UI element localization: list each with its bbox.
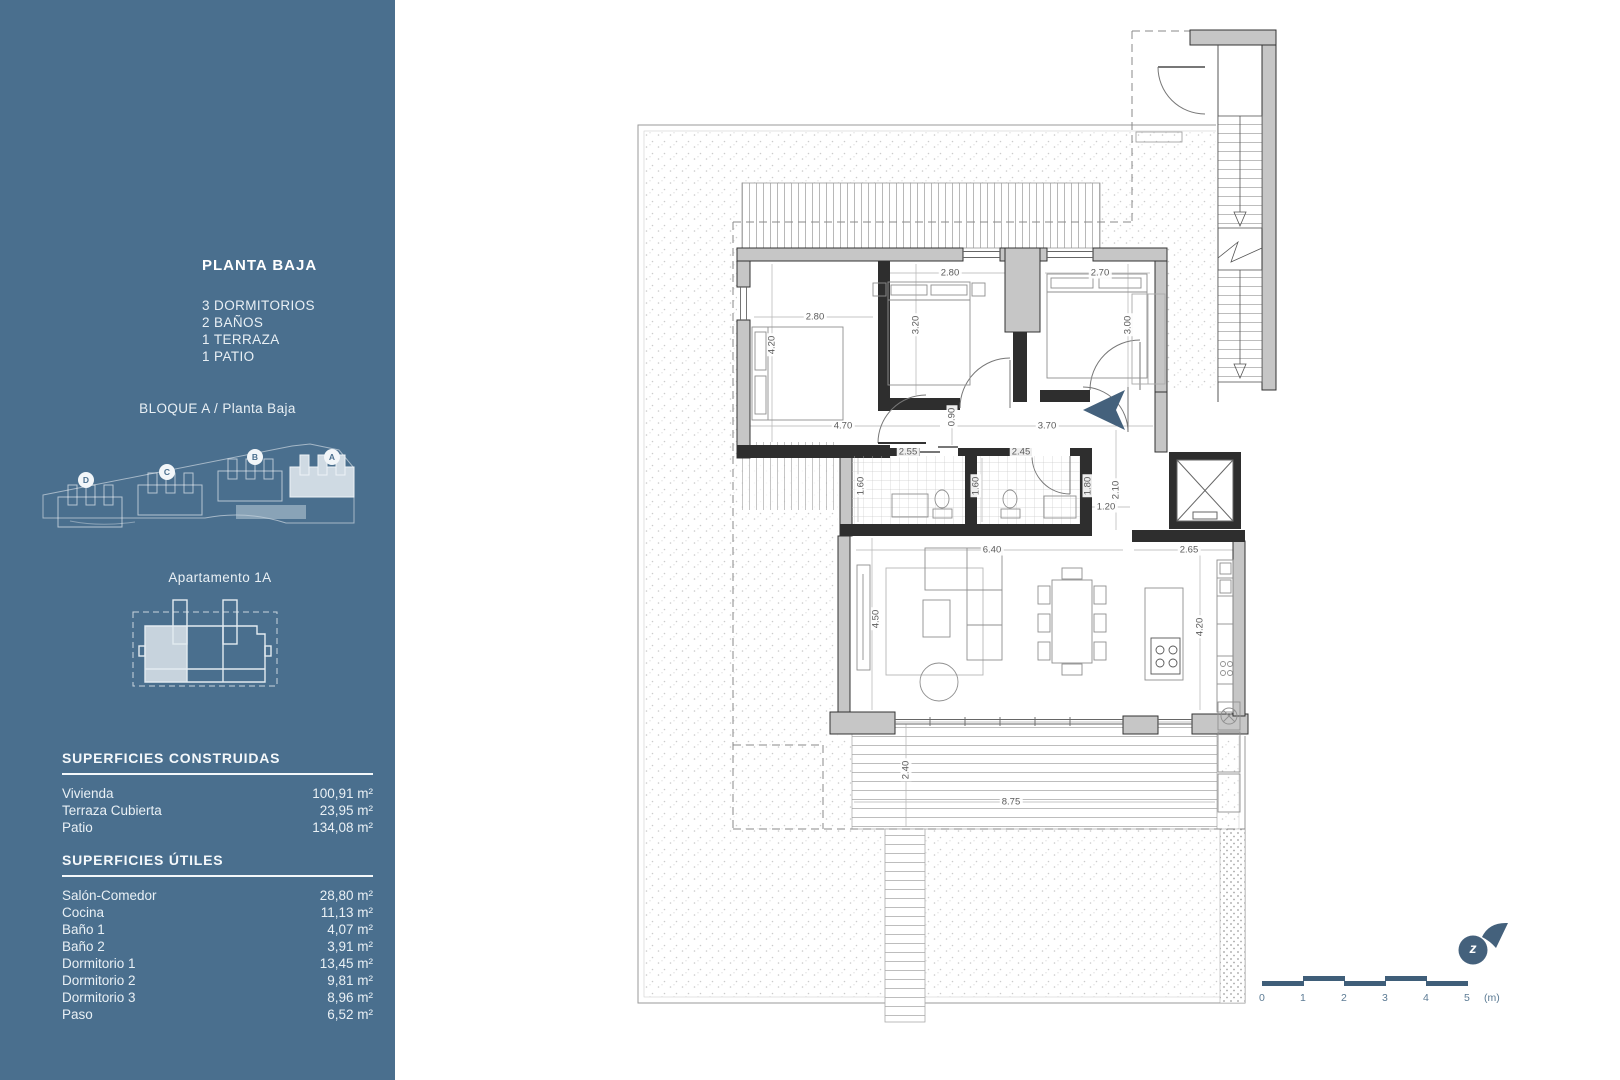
row-label: Cocina (62, 904, 104, 921)
dim-hall-b: 2.10 (1111, 479, 1122, 502)
dim-bath1-width: 2.55 (897, 447, 920, 458)
dim-bed1-width: 2.80 (804, 312, 827, 323)
dim-living-depth: 4.50 (871, 608, 882, 631)
feature-bedrooms: 3 DORMITORIOS (202, 297, 372, 314)
table-row: Baño 23,91 m² (62, 938, 373, 955)
scale-tick-1: 1 (1300, 992, 1306, 1004)
row-value: 6,52 m² (327, 1006, 373, 1023)
surfaces-useful-heading: SUPERFICIES ÚTILES (62, 852, 373, 877)
scale-tick-5: 5 (1464, 992, 1470, 1004)
table-row: Dormitorio 113,45 m² (62, 955, 373, 972)
surfaces-built-heading: SUPERFICIES CONSTRUIDAS (62, 750, 373, 775)
row-value: 4,07 m² (327, 921, 373, 938)
scale-tick-3: 3 (1382, 992, 1388, 1004)
row-label: Baño 1 (62, 921, 105, 938)
row-label: Dormitorio 3 (62, 989, 136, 1006)
sidebar: PLANTA BAJA 3 DORMITORIOS 2 BAÑOS 1 TERR… (0, 0, 395, 1080)
compass-logo-icon (1450, 920, 1516, 976)
row-label: Paso (62, 1006, 93, 1023)
pergola-roof (742, 183, 1100, 248)
dim-bed2-depth: 3.20 (911, 314, 922, 337)
block-badge-b: B (247, 449, 263, 465)
table-row: Patio134,08 m² (62, 819, 373, 836)
block-badge-d: D (78, 472, 94, 488)
dim-bath2-width: 2.45 (1010, 447, 1033, 458)
dim-bath2-depth: 1.60 (971, 475, 982, 498)
row-value: 8,96 m² (327, 989, 373, 1006)
logo-letter: z (1464, 940, 1482, 956)
dim-bed1-depth: 4.20 (767, 334, 778, 357)
brand-logo: z (1450, 920, 1516, 976)
row-value: 28,80 m² (320, 887, 373, 904)
dim-corridor-b: 0.90 (947, 406, 958, 429)
row-label: Salón-Comedor (62, 887, 157, 904)
feature-bathrooms: 2 BAÑOS (202, 314, 372, 331)
floor-plan: 2.80 4.20 2.80 3.20 2.70 3.00 4.70 0.90 … (620, 12, 1280, 1072)
table-row: Dormitorio 38,96 m² (62, 989, 373, 1006)
dim-bath1-depth: 1.60 (856, 475, 867, 498)
scale-tick-0: 0 (1259, 992, 1265, 1004)
dim-corridor-a: 4.70 (832, 421, 855, 432)
page-title: PLANTA BAJA (202, 257, 372, 274)
row-value: 13,45 m² (320, 955, 373, 972)
table-row: Baño 14,07 m² (62, 921, 373, 938)
row-value: 11,13 m² (321, 904, 373, 921)
highlighted-block-a (290, 455, 354, 497)
dim-deck-width: 8.75 (1000, 797, 1023, 808)
scale-tick-2: 2 (1341, 992, 1347, 1004)
table-row: Salón-Comedor28,80 m² (62, 887, 373, 904)
row-value: 134,08 m² (312, 819, 373, 836)
site-plan: D C B A (40, 423, 360, 533)
scale-unit: (m) (1484, 992, 1500, 1004)
apartment-diagram (125, 594, 285, 696)
feature-patio: 1 PATIO (202, 348, 372, 365)
row-value: 9,81 m² (327, 972, 373, 989)
table-row: Cocina11,13 m² (62, 904, 373, 921)
block-label: BLOQUE A / Planta Baja (60, 401, 375, 416)
scale-tick-4: 4 (1423, 992, 1429, 1004)
dim-corridor-c: 3.70 (1036, 421, 1059, 432)
feature-list: 3 DORMITORIOS 2 BAÑOS 1 TERRAZA 1 PATIO (202, 297, 372, 365)
feature-terrace: 1 TERRAZA (202, 331, 372, 348)
dim-living-width: 6.40 (981, 545, 1004, 556)
row-label: Patio (62, 819, 93, 836)
scale-bar: 0 1 2 3 4 5 (m) (1262, 976, 1512, 1008)
dim-deck-depth: 2.40 (901, 759, 912, 782)
surfaces-useful-section: SUPERFICIES ÚTILES Salón-Comedor28,80 m²… (62, 852, 373, 1023)
plan-header: PLANTA BAJA 3 DORMITORIOS 2 BAÑOS 1 TERR… (202, 257, 372, 365)
apartment-label: Apartamento 1A (65, 570, 375, 585)
table-row: Vivienda100,91 m² (62, 785, 373, 802)
dim-bed3-depth: 3.00 (1123, 314, 1134, 337)
row-label: Terraza Cubierta (62, 802, 162, 819)
row-label: Vivienda (62, 785, 114, 802)
table-row: Paso6,52 m² (62, 1006, 373, 1023)
row-label: Dormitorio 2 (62, 972, 136, 989)
elevator (1177, 460, 1233, 521)
surfaces-built-section: SUPERFICIES CONSTRUIDAS Vivienda100,91 m… (62, 750, 373, 836)
table-row: Terraza Cubierta23,95 m² (62, 802, 373, 819)
dim-hall-a: 1.80 (1083, 475, 1094, 498)
dim-kitchen-depth: 4.20 (1195, 616, 1206, 639)
row-value: 3,91 m² (327, 938, 373, 955)
table-row: Dormitorio 29,81 m² (62, 972, 373, 989)
floor-plan-drawing (620, 12, 1280, 1072)
row-value: 100,91 m² (312, 785, 373, 802)
dim-bed3-width: 2.70 (1089, 268, 1112, 279)
dim-hall-c: 1.20 (1095, 502, 1118, 513)
dim-kitchen-width: 2.65 (1178, 545, 1201, 556)
block-badge-c: C (159, 464, 175, 480)
block-badge-a: A (324, 449, 340, 465)
dim-bed2-width: 2.80 (939, 268, 962, 279)
row-value: 23,95 m² (320, 802, 373, 819)
row-label: Dormitorio 1 (62, 955, 136, 972)
row-label: Baño 2 (62, 938, 105, 955)
